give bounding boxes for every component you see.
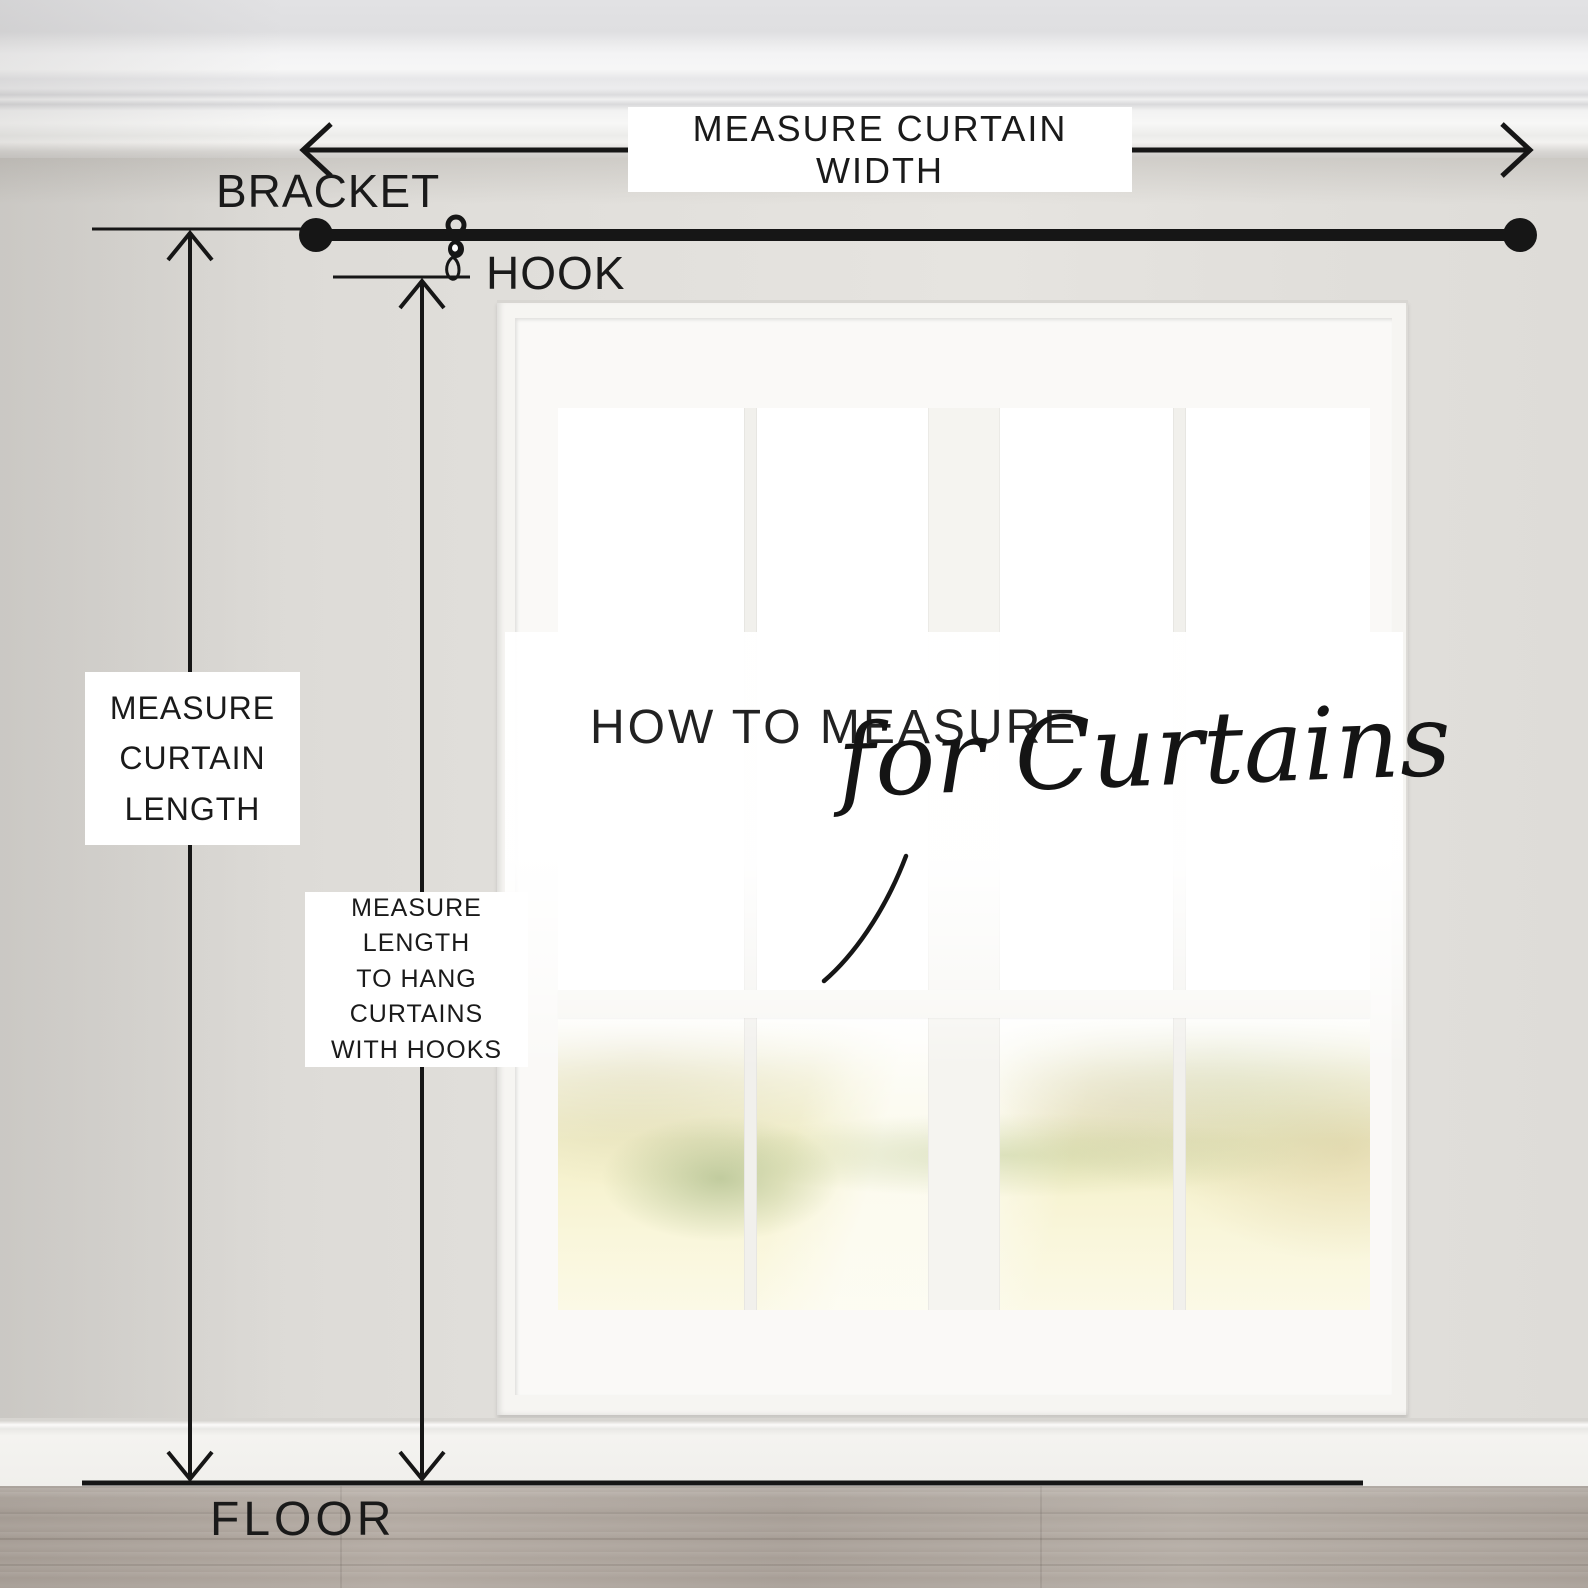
hook-length-label-box: MEASURE LENGTH TO HANG CURTAINS WITH HOO… [305, 892, 528, 1067]
curtain-length-line: CURTAIN [119, 733, 265, 784]
hook-length-line: WITH HOOKS [331, 1033, 502, 1069]
hook-length-line: LENGTH [363, 926, 470, 962]
baseboard [0, 1418, 1588, 1486]
measure-width-label-box: MEASURE CURTAIN WIDTH [628, 107, 1132, 192]
page-title-script: for Curtains [836, 691, 1452, 812]
bracket-label: BRACKET [216, 164, 440, 218]
hook-label: HOOK [486, 246, 625, 300]
room-scene: MEASURE CURTAIN WIDTH BRACKET HOOK MEASU… [0, 0, 1588, 1588]
floor-label: FLOOR [210, 1492, 395, 1547]
measure-width-label: MEASURE CURTAIN WIDTH [628, 108, 1132, 192]
hook-length-line: MEASURE [351, 891, 482, 927]
curtain-length-label-box: MEASURE CURTAIN LENGTH [85, 672, 300, 845]
hook-length-line: CURTAINS [350, 997, 483, 1033]
curtain-length-line: LENGTH [125, 784, 261, 835]
curtain-length-line: MEASURE [110, 683, 275, 734]
hook-length-line: TO HANG [356, 962, 476, 998]
